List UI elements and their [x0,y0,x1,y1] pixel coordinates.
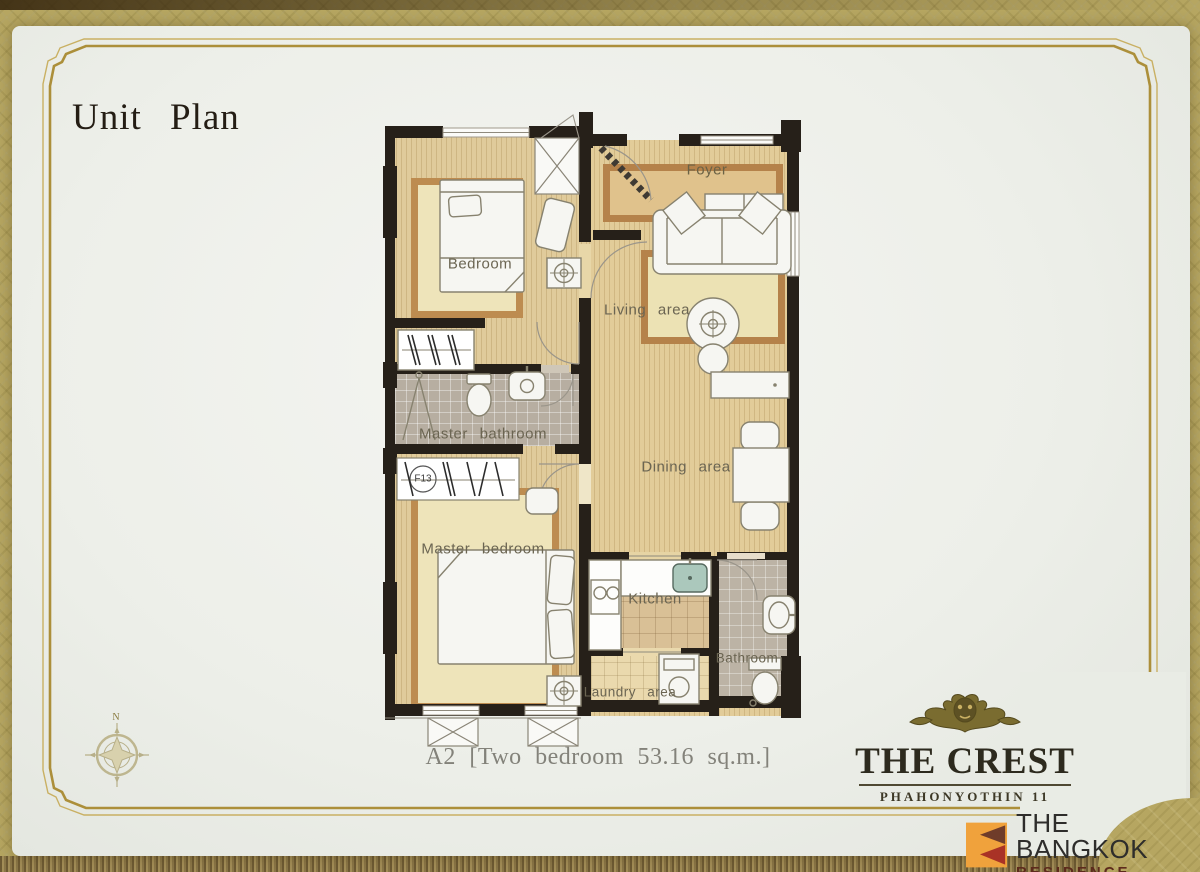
page-title: Unit Plan [72,96,240,139]
room-label-master-bathroom: Master bathroom [419,426,547,443]
door-arcs [537,242,757,600]
crest-divider [859,784,1071,786]
agency-name: THE BANGKOK RESIDENCE [1016,810,1200,872]
floor-plan: Bedroom Foyer Living area Master bathroo… [383,112,803,760]
master-bedroom-furniture [438,488,581,706]
room-label-master-bedroom: Master bedroom [421,541,544,558]
agency-name-line2: RESIDENCE [1016,865,1200,872]
floor-plan-photo: Unit Plan [0,0,1200,872]
compass-rose-icon [84,722,150,788]
closet-tag-f13: F13 [414,474,431,485]
project-logo: THE CREST PHAHONYOTHIN 11 [845,692,1085,805]
bedroom-furniture [398,180,581,370]
living-furniture [653,192,791,398]
room-label-bedroom: Bedroom [448,256,512,273]
project-location: PHAHONYOTHIN 11 [845,789,1085,805]
room-label-laundry: Laundry area [584,685,677,700]
agency-logo-icon [966,821,1007,869]
room-label-dining: Dining area [641,459,730,476]
room-label-foyer: Foyer [687,162,728,179]
agency-watermark: THE BANGKOK RESIDENCE [966,810,1200,872]
project-name: THE CREST [845,743,1085,782]
room-label-living: Living area [604,302,690,319]
room-label-kitchen: Kitchen [628,591,682,608]
room-label-bathroom: Bathroom [716,651,779,666]
dining-furniture [733,422,789,530]
agency-name-line1: THE BANGKOK [1016,810,1200,862]
crest-ornament-icon [890,692,1040,738]
